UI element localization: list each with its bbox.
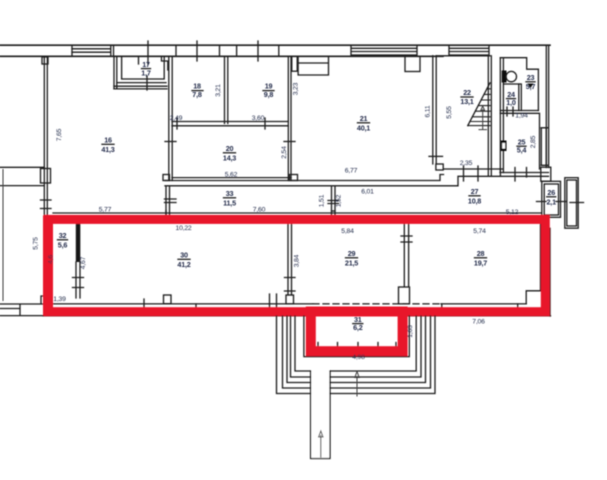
- svg-text:13,1: 13,1: [460, 97, 473, 106]
- svg-text:5,77: 5,77: [99, 207, 112, 214]
- svg-text:14,3: 14,3: [223, 154, 236, 163]
- svg-text:18: 18: [193, 82, 201, 91]
- svg-text:1,63: 1,63: [407, 325, 414, 338]
- svg-text:41,2: 41,2: [177, 260, 190, 269]
- svg-text:10,22: 10,22: [175, 225, 191, 232]
- svg-text:27: 27: [471, 187, 479, 196]
- svg-text:21,5: 21,5: [345, 259, 358, 268]
- svg-text:6,77: 6,77: [345, 168, 358, 175]
- svg-text:7,06: 7,06: [472, 319, 485, 326]
- svg-text:11,5: 11,5: [223, 199, 236, 208]
- svg-text:32: 32: [59, 231, 67, 240]
- svg-text:2,54: 2,54: [281, 146, 288, 159]
- svg-text:21: 21: [360, 114, 368, 123]
- svg-text:6,2: 6,2: [353, 323, 363, 332]
- svg-text:1,52: 1,52: [336, 194, 343, 207]
- svg-text:23: 23: [527, 73, 535, 82]
- svg-text:2,85: 2,85: [530, 135, 537, 148]
- svg-text:1,51: 1,51: [319, 194, 326, 207]
- svg-text:7,60: 7,60: [253, 207, 266, 214]
- svg-text:4,98: 4,98: [352, 354, 365, 361]
- svg-text:6,11: 6,11: [425, 105, 432, 117]
- svg-text:28: 28: [477, 249, 485, 258]
- svg-text:6,01: 6,01: [361, 189, 374, 196]
- svg-text:33: 33: [226, 189, 234, 198]
- svg-text:9,8: 9,8: [264, 90, 274, 99]
- svg-text:30: 30: [180, 251, 188, 260]
- svg-text:5,84: 5,84: [341, 228, 354, 235]
- svg-text:2,1: 2,1: [546, 198, 556, 207]
- svg-text:5,6: 5,6: [58, 241, 68, 250]
- svg-text:3,60: 3,60: [252, 115, 265, 122]
- svg-text:7,8: 7,8: [192, 90, 202, 99]
- svg-text:19,7: 19,7: [474, 259, 487, 268]
- svg-text:5,62: 5,62: [225, 172, 238, 179]
- svg-text:7,65: 7,65: [56, 128, 63, 141]
- svg-text:3,21: 3,21: [215, 84, 222, 97]
- svg-text:19: 19: [265, 82, 273, 91]
- svg-text:5,74: 5,74: [473, 228, 486, 235]
- svg-text:3,23: 3,23: [293, 82, 300, 95]
- svg-text:26: 26: [547, 188, 555, 197]
- svg-text:5,55: 5,55: [446, 106, 453, 119]
- svg-text:1,0: 1,0: [506, 98, 516, 107]
- svg-text:2,49: 2,49: [170, 115, 183, 122]
- svg-text:1,7: 1,7: [141, 69, 151, 78]
- svg-text:4,67: 4,67: [80, 256, 87, 269]
- svg-text:5,12: 5,12: [506, 209, 519, 216]
- svg-text:22: 22: [463, 88, 471, 97]
- svg-text:10,8: 10,8: [468, 197, 481, 206]
- svg-text:5,75: 5,75: [33, 237, 40, 250]
- svg-text:2,35: 2,35: [460, 160, 473, 167]
- svg-text:1,39: 1,39: [53, 296, 66, 303]
- svg-text:5,4: 5,4: [517, 146, 527, 155]
- svg-text:29: 29: [348, 249, 356, 258]
- svg-text:4,6: 4,6: [48, 255, 55, 264]
- svg-text:20: 20: [226, 144, 234, 153]
- svg-text:40,1: 40,1: [357, 124, 370, 133]
- svg-text:1,94: 1,94: [515, 113, 528, 120]
- svg-text:41,3: 41,3: [101, 145, 114, 154]
- svg-text:3,84: 3,84: [294, 254, 301, 267]
- svg-text:16: 16: [104, 136, 112, 145]
